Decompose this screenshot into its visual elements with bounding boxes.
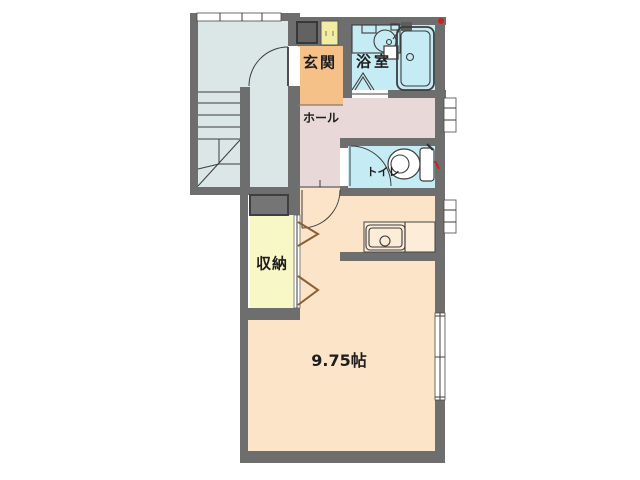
wall bbox=[343, 17, 352, 90]
pillar-box bbox=[297, 22, 317, 43]
floor-plan: 玄関 浴室 ホール トイレ 収納 9.75帖 bbox=[0, 0, 640, 480]
shoe-cabinet-icon bbox=[321, 21, 338, 45]
room-label-bathroom: 浴室 bbox=[356, 55, 392, 70]
living-room-floor bbox=[248, 320, 300, 451]
room-label-hall: ホール bbox=[303, 112, 339, 124]
room-label-entrance: 玄関 bbox=[303, 56, 337, 71]
window-icon bbox=[197, 13, 281, 21]
wall bbox=[346, 188, 435, 196]
wall bbox=[240, 87, 250, 187]
wall bbox=[190, 13, 198, 195]
kitchen-counter bbox=[364, 222, 435, 252]
duct-box bbox=[250, 195, 288, 215]
room-label-toilet: トイレ bbox=[367, 167, 400, 178]
room-label-living-size: 9.75帖 bbox=[311, 353, 366, 369]
kitchen-counter-wall bbox=[340, 252, 435, 261]
wall bbox=[240, 187, 248, 463]
window-icon bbox=[444, 98, 456, 132]
window-icon bbox=[444, 200, 456, 233]
room-label-storage: 収納 bbox=[256, 257, 288, 272]
toilet-tank bbox=[420, 148, 434, 181]
wall bbox=[240, 308, 300, 320]
door-opening bbox=[288, 47, 300, 86]
floor-plan-drawing bbox=[0, 0, 640, 480]
red-marker-dot bbox=[438, 18, 444, 24]
wall bbox=[240, 451, 445, 463]
wall bbox=[340, 138, 435, 146]
door-opening bbox=[340, 148, 348, 186]
